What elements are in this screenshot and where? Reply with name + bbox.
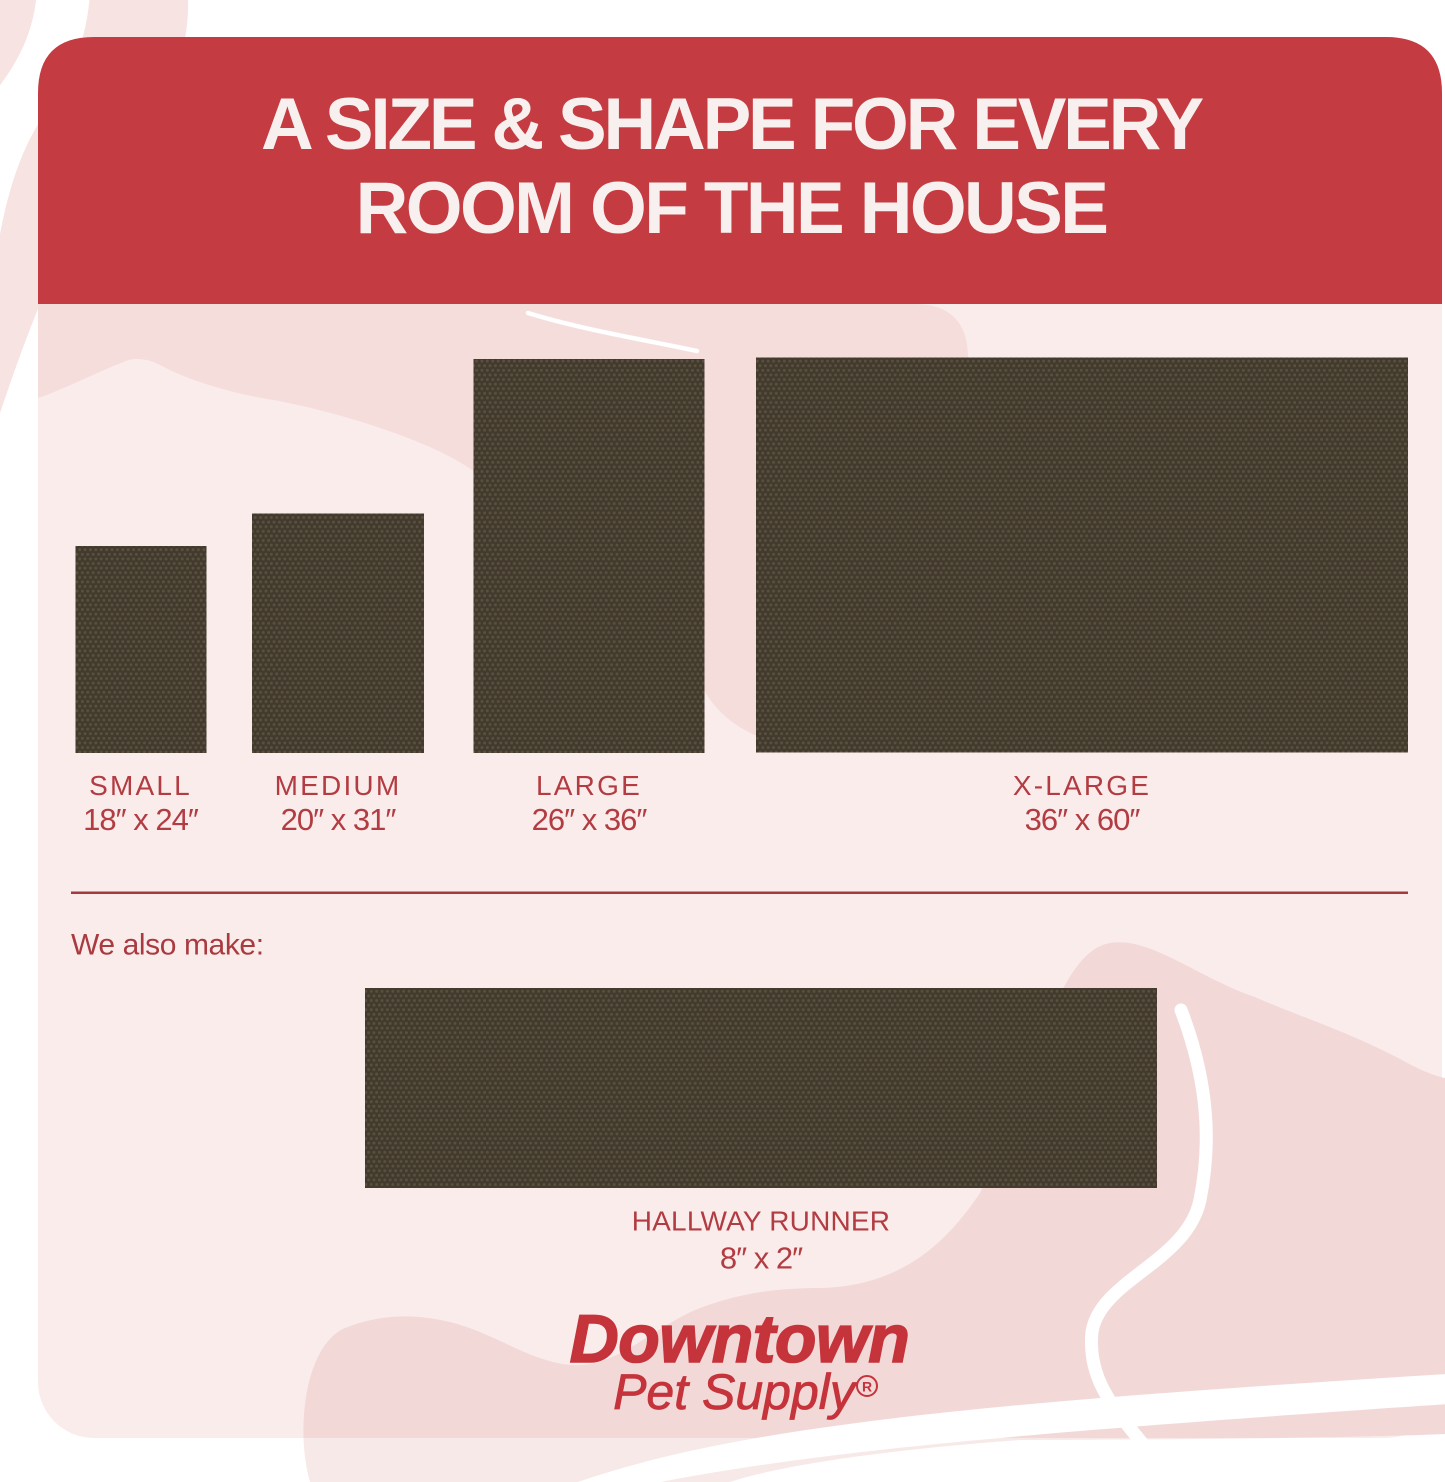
svg-text:A SIZE & SHAPE FOR EVERY: A SIZE & SHAPE FOR EVERY — [261, 84, 1203, 165]
svg-text:LARGE: LARGE — [536, 770, 642, 801]
svg-text:R: R — [862, 1379, 872, 1395]
svg-text:26″ x 36″: 26″ x 36″ — [532, 802, 648, 837]
svg-text:ROOM OF THE HOUSE: ROOM OF THE HOUSE — [356, 168, 1107, 249]
svg-text:20″ x 31″: 20″ x 31″ — [281, 802, 397, 837]
svg-text:HALLWAY RUNNER: HALLWAY RUNNER — [632, 1206, 890, 1237]
svg-text:MEDIUM: MEDIUM — [275, 770, 402, 801]
svg-text:36″ x 60″: 36″ x 60″ — [1025, 802, 1141, 837]
svg-text:Pet Supply: Pet Supply — [613, 1364, 858, 1420]
svg-text:X-LARGE: X-LARGE — [1013, 770, 1151, 801]
svg-text:We also make:: We also make: — [71, 929, 264, 962]
svg-text:SMALL: SMALL — [89, 770, 192, 801]
svg-text:8″ x 2″: 8″ x 2″ — [720, 1241, 803, 1276]
svg-text:18″ x 24″: 18″ x 24″ — [83, 802, 199, 837]
